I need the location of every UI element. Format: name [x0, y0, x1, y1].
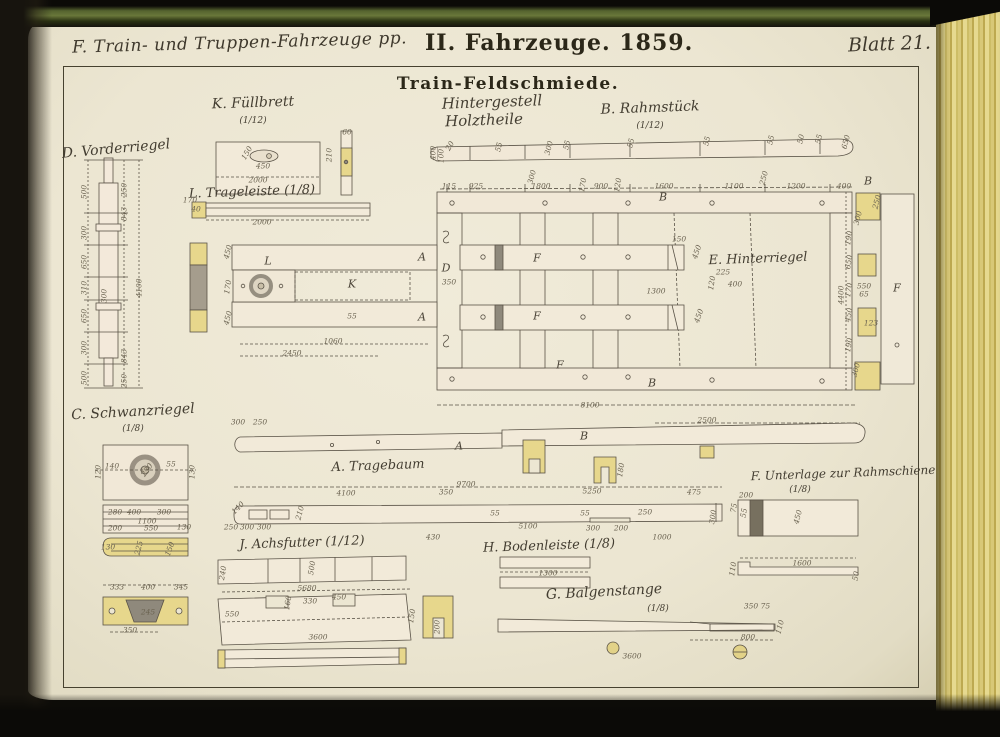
drawing-letter: B	[864, 176, 872, 187]
drawing-letter: K	[348, 279, 356, 290]
dim-label: 123	[864, 319, 878, 327]
dim-label: 345	[174, 583, 188, 591]
drawing-letter: A	[455, 441, 463, 452]
dim-label: 55	[490, 509, 500, 517]
dim-label: 3600	[308, 633, 327, 641]
dim-label: 8100	[580, 401, 599, 409]
part-label-scale-f-unterlage: (1/8)	[789, 485, 811, 495]
dim-label: 40	[191, 205, 201, 213]
dim-label: 450	[332, 593, 346, 601]
dim-label: 650	[80, 309, 88, 323]
dim-label: 1600	[654, 182, 673, 190]
dim-label: 550	[225, 610, 239, 618]
scanned-book-page: F. Train- und Truppen-Fahrzeuge pp. II. …	[0, 0, 1000, 737]
drawing-letter: B	[648, 378, 656, 389]
dim-label: 475	[687, 488, 701, 496]
dim-label: 843	[120, 207, 128, 221]
dim-label: 1200	[786, 182, 805, 190]
dim-label: 250	[224, 523, 238, 531]
dim-label: 250	[638, 508, 652, 516]
dim-label: 300	[257, 523, 271, 531]
dim-label: 250	[253, 418, 267, 426]
dim-label: 1300	[538, 569, 557, 577]
drawing-achsfutter	[218, 556, 453, 668]
dim-label: 300	[231, 418, 245, 426]
dim-label: 1000	[652, 533, 671, 541]
dim-label: 60	[342, 128, 352, 136]
dim-label: 75	[729, 503, 738, 514]
dim-label: 65	[859, 290, 869, 298]
dim-label: 400	[127, 508, 141, 516]
dim-label: 350	[442, 278, 456, 286]
dim-label: 250	[120, 183, 128, 197]
dim-label: 400	[728, 280, 742, 288]
dim-label: 280	[108, 508, 122, 516]
dim-label: 450	[256, 162, 270, 170]
dim-label: 5250	[582, 487, 601, 495]
dim-label: 310	[80, 281, 88, 295]
dim-label: 55	[739, 508, 748, 519]
part-label-scale-k-fuellbrett: (1/12)	[239, 116, 266, 126]
drawing-letter: F	[533, 253, 541, 264]
dim-label: 2000	[252, 218, 271, 226]
dim-label: 300	[80, 226, 88, 240]
drawing-vorderriegel	[84, 158, 143, 388]
part-label-k-fuellbrett: K. Füllbrett	[212, 94, 295, 113]
dim-label: 50	[851, 571, 860, 582]
dim-label: 300	[157, 508, 171, 516]
dim-label: 210	[325, 148, 333, 162]
dim-label: 1100	[724, 182, 743, 190]
dim-label: 650	[80, 255, 88, 269]
drawing-letter: B	[580, 431, 588, 442]
dim-label: 300	[586, 524, 600, 532]
technical-drawing-canvas	[0, 0, 1000, 737]
dim-label: 3600	[622, 652, 641, 660]
dim-label: 115	[442, 182, 456, 190]
drawing-letter: B	[659, 192, 667, 203]
drawing-letter: F	[533, 311, 541, 322]
dim-label: 245	[141, 608, 155, 616]
dim-label: 333	[110, 583, 124, 591]
dim-label: 550	[144, 524, 158, 532]
dim-label: 200	[433, 620, 441, 634]
dim-label: 4100	[336, 489, 355, 497]
dim-label: 2500	[697, 416, 716, 424]
dim-label: 130	[177, 523, 191, 531]
dim-label: 2450	[282, 349, 301, 357]
part-label-scale-g-balgenstange: (1/8)	[647, 604, 669, 614]
drawing-frame-side-bar	[235, 423, 865, 473]
dim-label: 100	[437, 149, 445, 163]
part-label-scale-b-rahmstueck: (1/12)	[636, 121, 663, 131]
dim-label: 170	[183, 196, 197, 204]
dim-label: 500	[80, 185, 88, 199]
dim-label: 400	[837, 182, 851, 190]
dim-label: 5680	[297, 584, 316, 592]
dim-label: 55	[580, 509, 590, 517]
part-label-scale-c-schwanzriegel: (1/8)	[122, 424, 144, 434]
dim-label: 4100	[135, 278, 143, 297]
dim-label: 1300	[646, 287, 665, 295]
dim-label: 9700	[456, 480, 475, 488]
dim-label: 800	[741, 633, 755, 641]
dim-label: 843	[120, 349, 128, 363]
dim-label: 140	[105, 462, 119, 470]
dim-label: 430	[426, 533, 440, 541]
drawing-letter: F	[556, 360, 564, 371]
dim-label: 925	[469, 182, 483, 190]
dim-label: 400	[141, 583, 155, 591]
dim-label: 200	[108, 524, 122, 532]
dim-label: 300	[80, 341, 88, 355]
dim-label: 2000	[248, 176, 267, 184]
dim-label: 350 75	[744, 602, 770, 610]
dim-label: 120	[94, 465, 102, 479]
drawing-rails-a	[190, 243, 437, 356]
dim-label: 130	[188, 465, 196, 479]
drawing-letter: L	[264, 256, 271, 267]
dim-label: 55	[166, 460, 176, 468]
dim-label: 200	[739, 491, 753, 499]
dim-label: 1600	[792, 559, 811, 567]
dim-label: 225	[716, 268, 730, 276]
dim-label: 200	[614, 524, 628, 532]
dim-label: 130	[101, 543, 115, 551]
dim-label: 5100	[518, 522, 537, 530]
dim-label: 150	[672, 235, 686, 243]
drawing-trageleiste	[192, 202, 370, 220]
dim-label: 500	[80, 371, 88, 385]
drawing-letter: A	[418, 252, 426, 263]
dim-label: 330	[303, 597, 317, 605]
dim-label: 300	[100, 289, 108, 303]
dim-label: 55	[347, 312, 357, 320]
dim-label: 1060	[323, 337, 342, 345]
dim-label: 250	[120, 374, 128, 388]
dim-label: 300	[240, 523, 254, 531]
drawing-letter: D	[442, 263, 451, 274]
dim-label: 4400	[837, 285, 845, 304]
dim-label: 350	[123, 626, 137, 634]
dim-label: 900	[594, 182, 608, 190]
drawing-letter: A	[418, 312, 426, 323]
drawing-letter: F	[893, 283, 901, 294]
dim-label: 350	[439, 488, 453, 496]
